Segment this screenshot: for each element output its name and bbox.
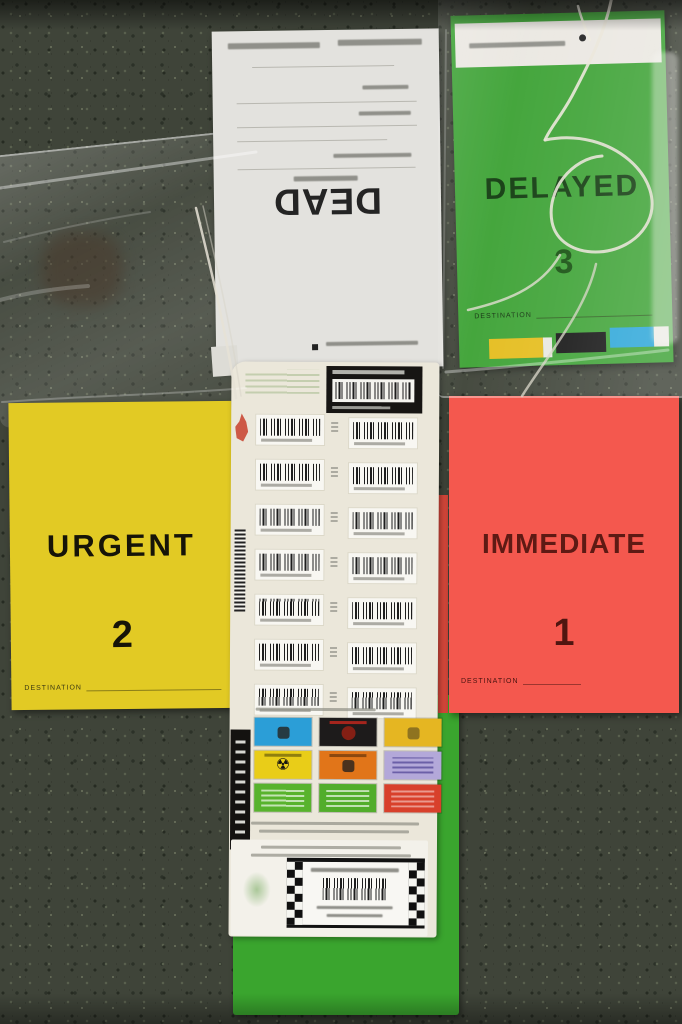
panel-text-blur: [261, 846, 401, 850]
form-text-blur: [228, 42, 320, 49]
barcode-sticker: [348, 507, 418, 539]
form-text-blur: [326, 341, 418, 346]
side-label-column: [230, 729, 251, 849]
barcode-sticker: [254, 684, 324, 716]
barcode-sticker: [255, 414, 325, 446]
header-barcode: [332, 379, 414, 402]
plastic-bag-right: [438, 0, 682, 398]
urgent-number: 2: [11, 613, 234, 658]
hazard-glyph: [277, 727, 289, 739]
sheet-mid-mark: [331, 465, 338, 477]
info-sticker-green: [254, 784, 311, 812]
plastic-bag-fold: [652, 52, 678, 344]
info-sticker-red: [384, 784, 441, 812]
vertical-barcode: [234, 529, 245, 611]
sticker-barcode: [323, 878, 387, 900]
sheet-mid-mark: [330, 690, 337, 702]
checkered-barcode-sticker: [287, 858, 425, 929]
sheet-caption-blur: [259, 830, 409, 834]
hazard-sticker-amber: [384, 718, 441, 746]
checker-border-right: [409, 862, 425, 925]
immediate-number: 1: [449, 612, 679, 655]
header-text-blur: [332, 406, 390, 409]
form-line: [252, 65, 394, 68]
hazard-glyph: [407, 728, 419, 740]
sheet-mid-mark: [330, 555, 337, 567]
sheet-mid-mark: [330, 645, 337, 657]
sticker-text-blur: [317, 906, 393, 909]
form-dot: [312, 344, 318, 350]
form-text-blur: [359, 111, 411, 116]
form-line: [237, 101, 417, 105]
info-sticker-green-2: [319, 784, 376, 812]
hazard-glyph: [342, 760, 354, 772]
barcode-sticker: [255, 504, 325, 536]
barcode-sticker: [347, 642, 417, 674]
sticker-text-blur: [261, 790, 304, 807]
sheet-bottom-panel: [231, 839, 428, 936]
sheet-caption-blur: [251, 822, 419, 826]
barcode-sticker: [254, 594, 324, 626]
dead-card: DEAD: [212, 28, 444, 369]
form-line: [237, 125, 417, 129]
hazard-sticker-orange: [319, 751, 376, 779]
urgent-tag: URGENT 2 DESTINATION: [8, 401, 234, 710]
sheet-mid-mark: [330, 600, 337, 612]
barcode-sheet: ☢: [228, 361, 439, 937]
hazard-glyph: [341, 726, 355, 740]
barcode-sticker: [347, 552, 417, 584]
urgent-label: URGENT: [10, 527, 233, 565]
sheet-mid-mark: [331, 420, 338, 432]
hazard-sticker-lavender: [384, 751, 441, 779]
urgent-destination: DESTINATION: [24, 683, 221, 692]
form-line: [238, 167, 416, 170]
red-card-edge: [438, 495, 448, 713]
barcode-sticker: [347, 687, 417, 719]
hazard-sticker-black: [319, 718, 376, 746]
sheet-mid-mark: [331, 510, 338, 522]
radiation-sticker: ☢: [254, 751, 311, 779]
form-text-blur: [338, 39, 422, 46]
barcode-sticker: [348, 462, 418, 494]
sticker-text-blur: [311, 868, 399, 872]
sheet-header: [326, 366, 422, 414]
hazard-text-blur: [392, 757, 433, 773]
barcode-sticker: [255, 459, 325, 491]
sticker-text-blur: [391, 790, 434, 807]
immediate-tag: IMMEDIATE 1 DESTINATION: [449, 396, 679, 713]
form-text-blur: [333, 153, 411, 158]
checker-border-left: [287, 862, 303, 925]
sticker-text-blur: [326, 790, 369, 807]
immediate-label: IMMEDIATE: [449, 528, 679, 560]
barcode-sticker: [254, 639, 324, 671]
flame-icon: [235, 413, 248, 441]
faint-green-mark: [243, 872, 271, 908]
barcode-sticker: [348, 417, 418, 449]
barcode-sticker: [347, 597, 417, 629]
hazard-sticker-blue: [254, 718, 311, 746]
panel-text-blur: [251, 854, 411, 858]
barcode-sticker: [254, 549, 324, 581]
header-text-blur: [332, 370, 404, 374]
sticker-text-blur: [327, 914, 383, 917]
radiation-icon: ☢: [254, 751, 311, 779]
form-text-blur: [362, 85, 408, 90]
sheet-caption-blur: [256, 708, 376, 712]
bag-contents-shadow: [42, 232, 122, 306]
immediate-destination: DESTINATION: [461, 678, 581, 685]
photo-stage: DEAD DELAYED 3 DESTINATION URGENT 2 DEST…: [0, 0, 682, 1024]
sheet-print-block: [245, 370, 319, 394]
form-line: [237, 139, 387, 142]
dead-label: DEAD: [214, 178, 442, 223]
